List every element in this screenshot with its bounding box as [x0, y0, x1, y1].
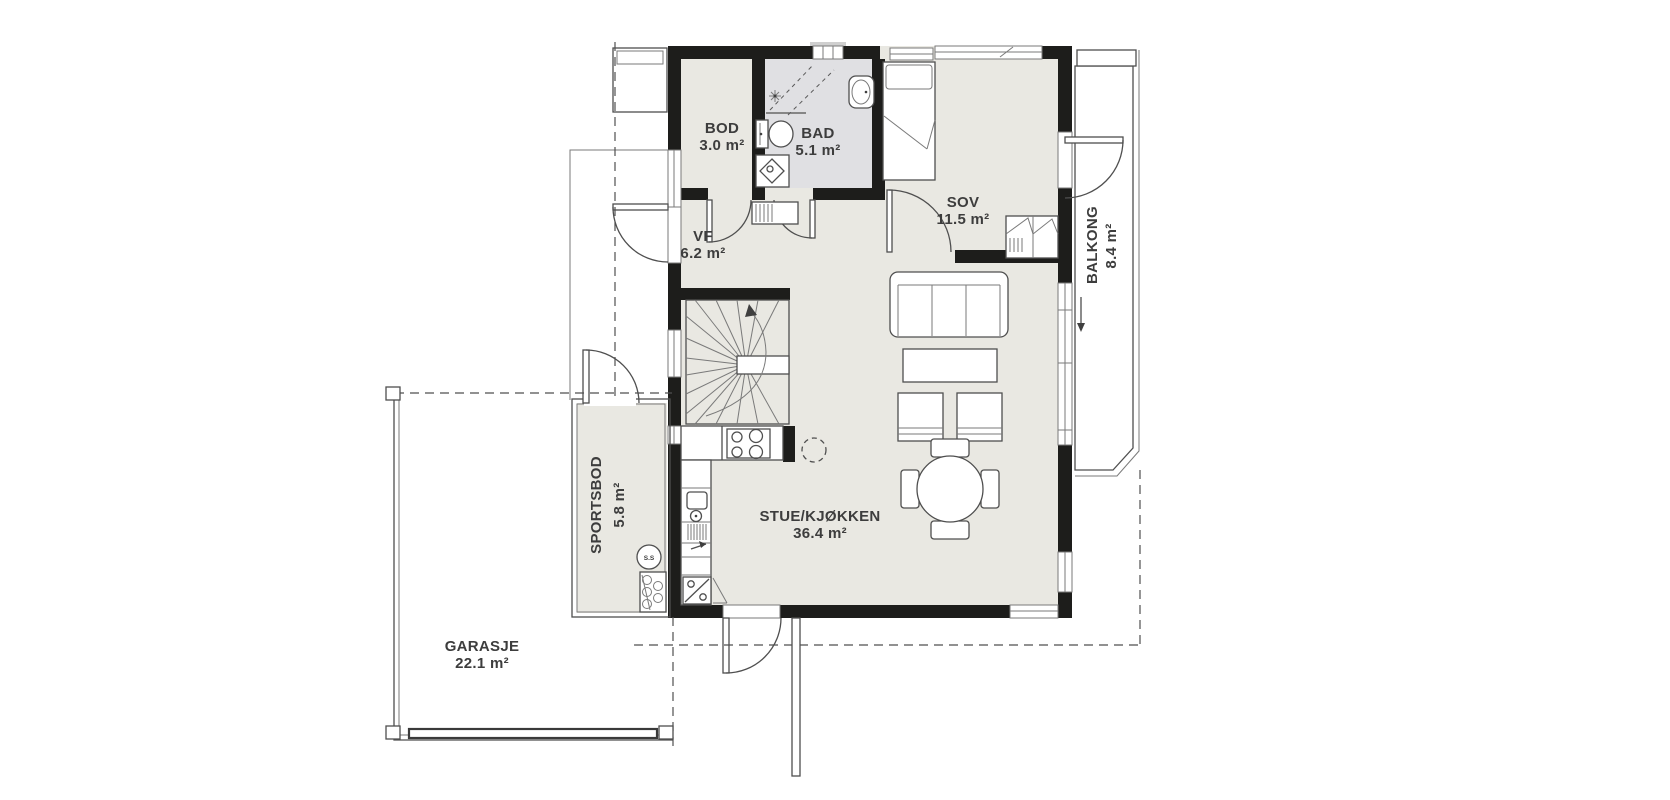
door-leaf: [583, 350, 589, 403]
room-label-bod: BOD 3.0 m²: [699, 120, 744, 154]
room-area: 11.5 m²: [937, 211, 990, 228]
room-name: BOD: [705, 120, 739, 137]
room-area: 5.8 m²: [611, 482, 628, 527]
armchair-icon: [957, 393, 1002, 441]
room-area: 6.2 m²: [680, 245, 725, 262]
room-name: SPORTSBOD: [588, 456, 605, 554]
water-heater-label: S.S: [644, 555, 655, 562]
room-name: BALKONG: [1084, 206, 1101, 284]
window: [810, 42, 846, 59]
canopy-outline: [613, 48, 667, 112]
water-heater-icon: S.S: [637, 545, 661, 569]
wall-segment: [668, 46, 813, 59]
door-swing-icon: [613, 207, 668, 262]
wall-segment: [1058, 605, 1072, 618]
dining-chair: [931, 521, 969, 539]
stove-icon: [727, 429, 770, 459]
toilet-icon: [756, 120, 793, 148]
balcony-arrow-icon: [1077, 297, 1085, 332]
balcony-door: [1058, 132, 1123, 198]
threshold: [723, 605, 780, 618]
room-label-bad: BAD 5.1 m²: [795, 125, 840, 159]
floor-plan-drawing: S.S BOD 3.0 m²: [0, 0, 1670, 800]
terrace-divider: [792, 618, 800, 776]
wall-segment: [668, 605, 723, 618]
garage-door-icon: [409, 729, 657, 738]
dining-chair: [901, 470, 919, 508]
door-leaf: [887, 190, 892, 252]
door-opening: [584, 396, 636, 406]
room-name: GARASJE: [445, 638, 520, 655]
room-area: 5.1 m²: [795, 142, 840, 159]
wall-segment: [1058, 46, 1072, 132]
garage-corner-post: [386, 387, 400, 400]
window: [890, 48, 933, 60]
threshold: [668, 207, 681, 263]
window: [1010, 605, 1058, 618]
wardrobe-icon: [1006, 216, 1058, 258]
terrace-door: [723, 605, 781, 673]
wall-segment: [780, 605, 1010, 618]
pipes-icon: [640, 572, 666, 612]
wall-segment: [681, 288, 790, 300]
door-leaf: [613, 204, 668, 210]
garage-corner-post: [659, 726, 673, 739]
room-label-garasje: GARASJE 22.1 m²: [445, 638, 520, 672]
bathroom-sink-icon: [849, 76, 874, 108]
wall-segment: [681, 188, 708, 200]
wall-segment: [1058, 445, 1072, 552]
window: [668, 330, 681, 377]
wall-segment: [668, 46, 681, 150]
bed-icon: [883, 62, 935, 180]
wall-segment: [843, 46, 880, 59]
entrance-door: [613, 204, 681, 263]
window: [1058, 283, 1072, 445]
door-swing-icon: [1065, 140, 1123, 198]
door-swing-icon: [586, 350, 639, 403]
sofa-icon: [890, 272, 1008, 337]
sportsbod-door: [583, 350, 639, 403]
room-area: 3.0 m²: [699, 137, 744, 154]
room-name: SOV: [947, 194, 980, 211]
door-leaf: [1065, 137, 1123, 143]
window: [1058, 552, 1072, 592]
room-name: VF: [693, 228, 713, 245]
washing-machine-icon: [756, 155, 789, 187]
wall-segment: [1058, 188, 1072, 283]
room-area: 36.4 m²: [793, 525, 847, 542]
room-name: BAD: [801, 125, 834, 142]
garage-corner-post: [386, 726, 400, 739]
wall-segment: [783, 426, 795, 462]
coffee-table-icon: [903, 349, 997, 382]
room-area: 8.4 m²: [1103, 223, 1120, 268]
canopy-window: [617, 51, 663, 64]
balcony-top-rail: [1077, 50, 1136, 66]
armchair-icon: [898, 393, 943, 441]
floor-plan: S.S BOD 3.0 m²: [0, 0, 1670, 800]
window: [935, 46, 1042, 59]
dining-chair: [981, 470, 999, 508]
door-leaf: [810, 200, 815, 238]
room-label-balkong: BALKONG 8.4 m²: [1084, 206, 1120, 284]
wall-segment: [668, 263, 681, 330]
hallway-cabinet-icon: [752, 202, 798, 224]
window: [668, 150, 681, 207]
dining-chair: [931, 439, 969, 457]
room-name: STUE/KJØKKEN: [759, 508, 880, 525]
room-area: 22.1 m²: [455, 655, 509, 672]
wall-segment: [1042, 46, 1058, 59]
